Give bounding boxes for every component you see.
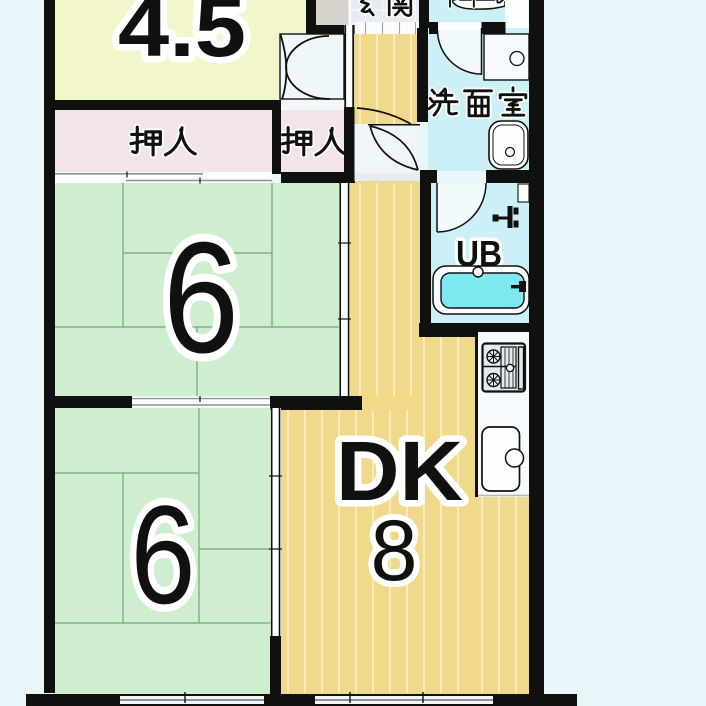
svg-text:6: 6: [163, 210, 239, 386]
svg-text:8: 8: [371, 503, 418, 599]
svg-text:6: 6: [131, 476, 196, 633]
svg-text:4.5: 4.5: [118, 0, 246, 74]
